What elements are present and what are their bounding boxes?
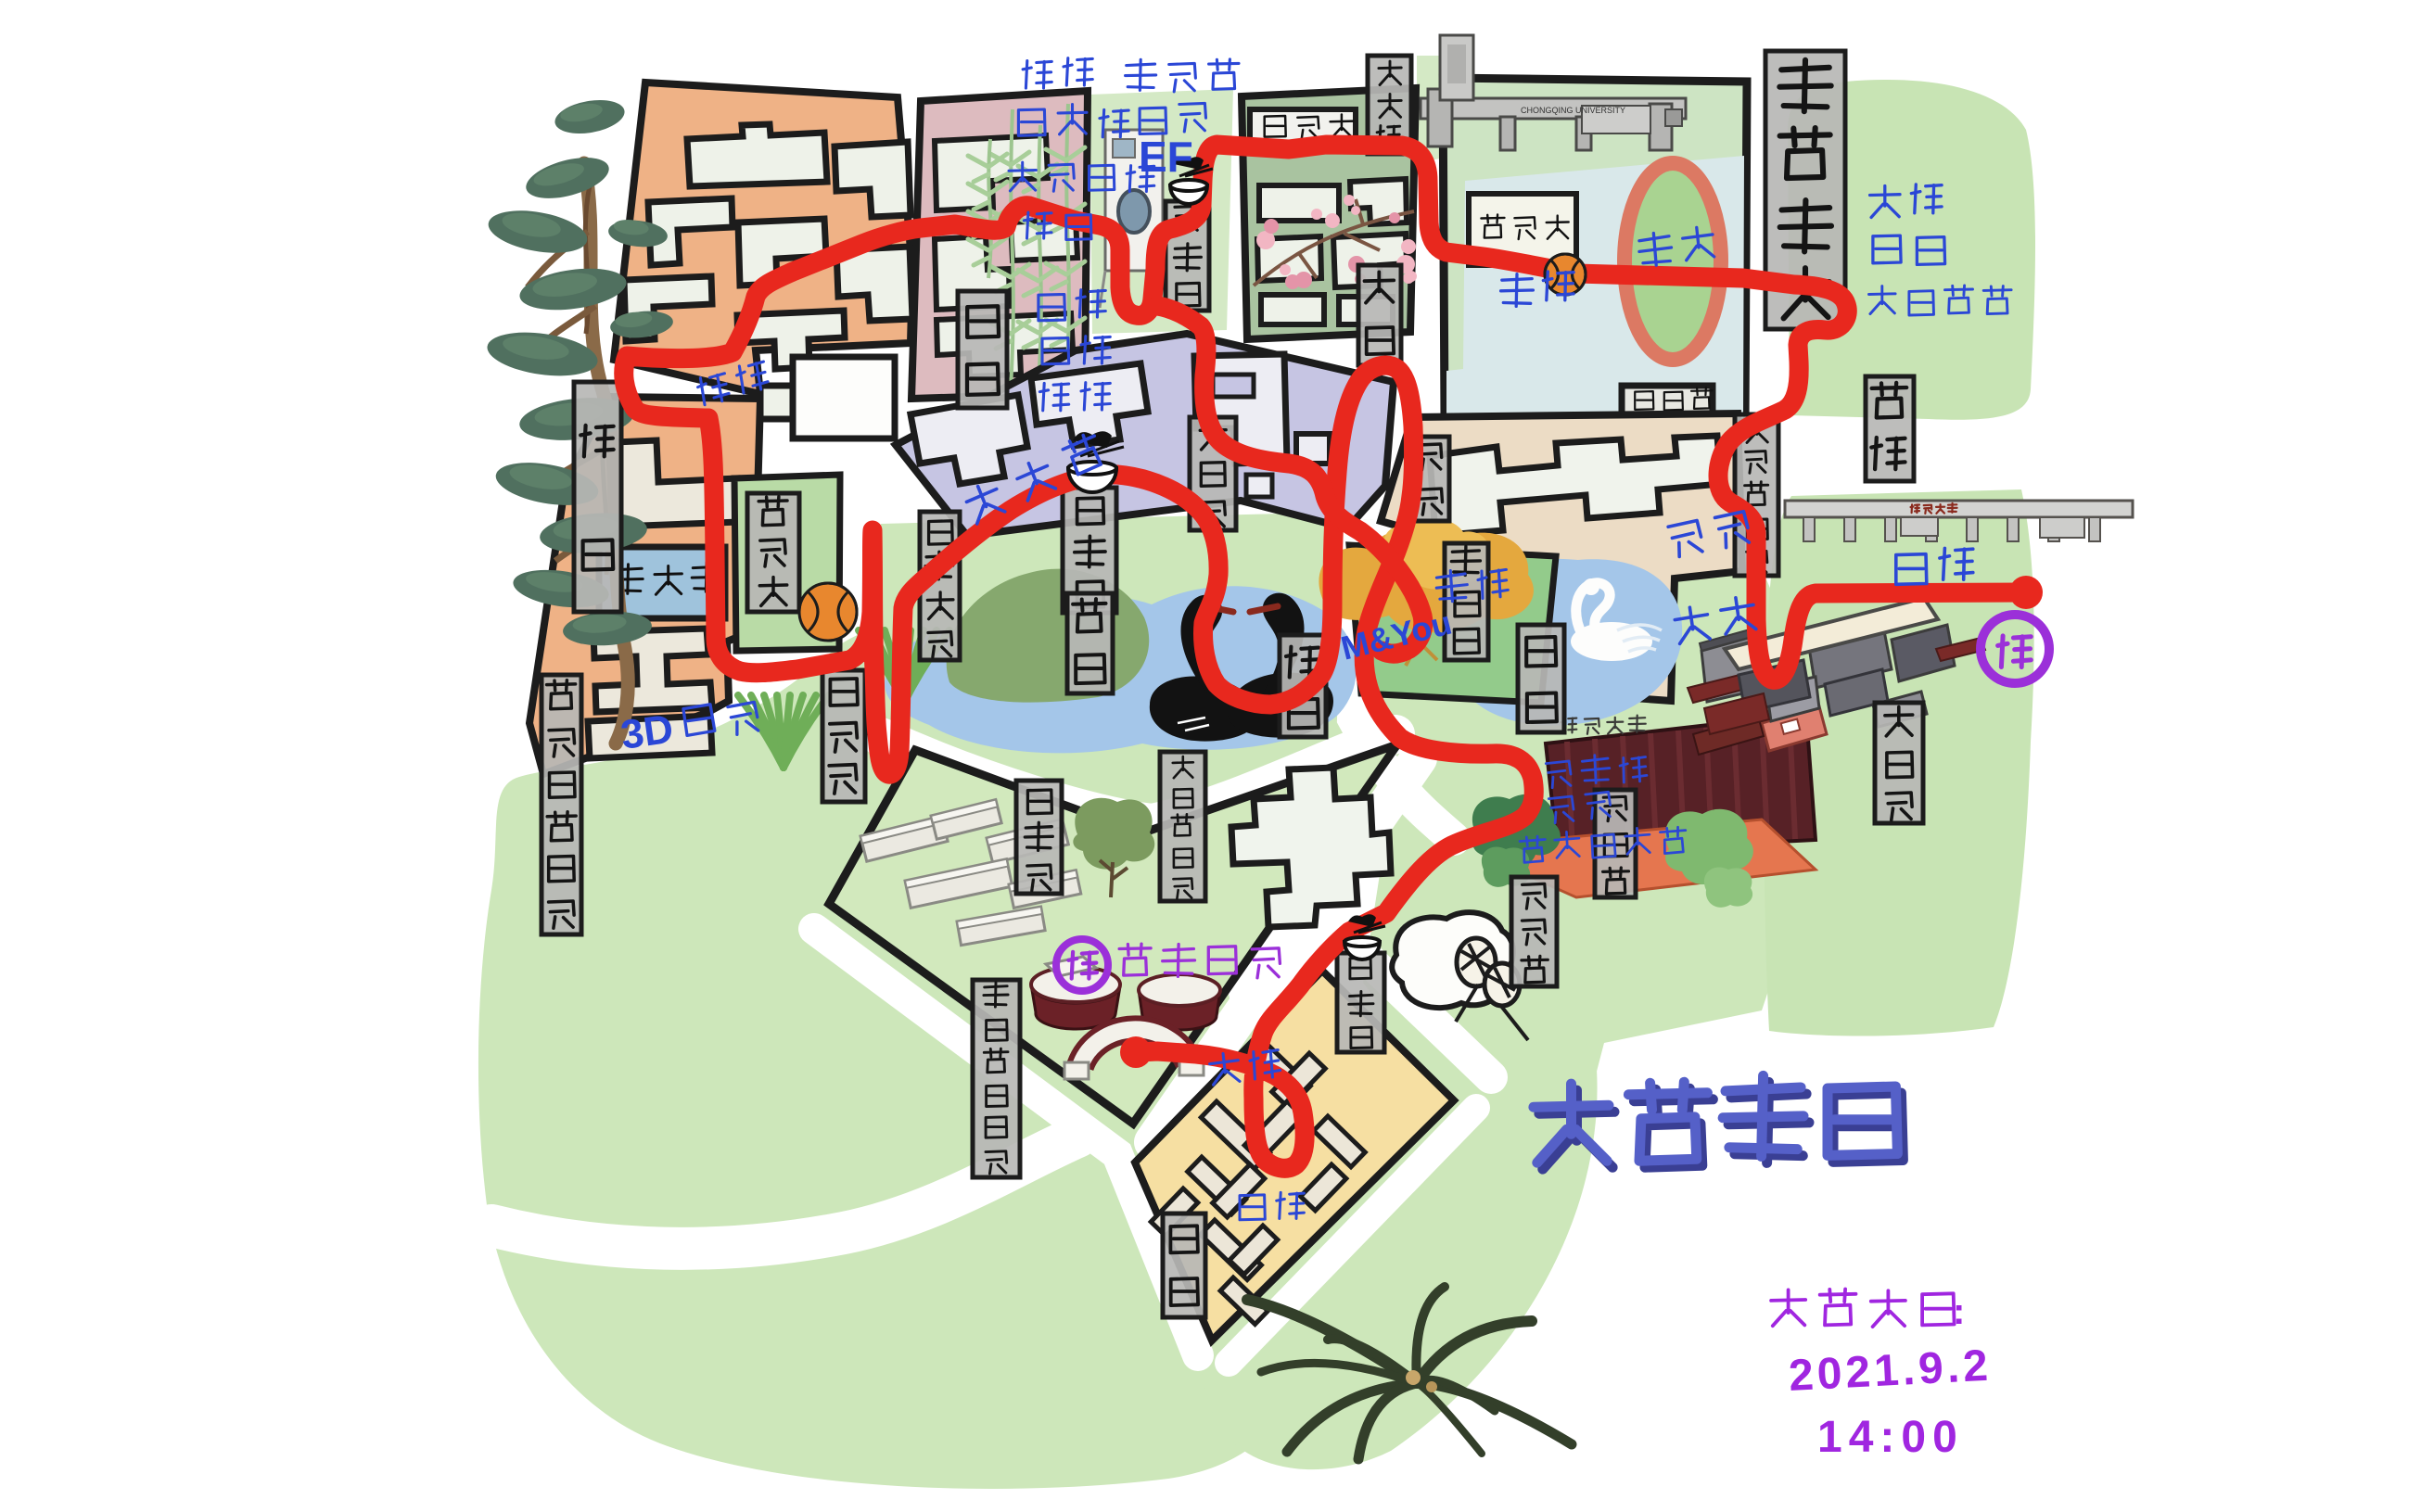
svg-text:EF: EF	[1139, 133, 1193, 181]
svg-text:14:00: 14:00	[1817, 1413, 1964, 1462]
svg-text:CHONGQING UNIVERSITY: CHONGQING UNIVERSITY	[1521, 106, 1625, 115]
svg-text::: :	[1953, 1291, 1965, 1332]
svg-text:3D: 3D	[618, 706, 677, 758]
